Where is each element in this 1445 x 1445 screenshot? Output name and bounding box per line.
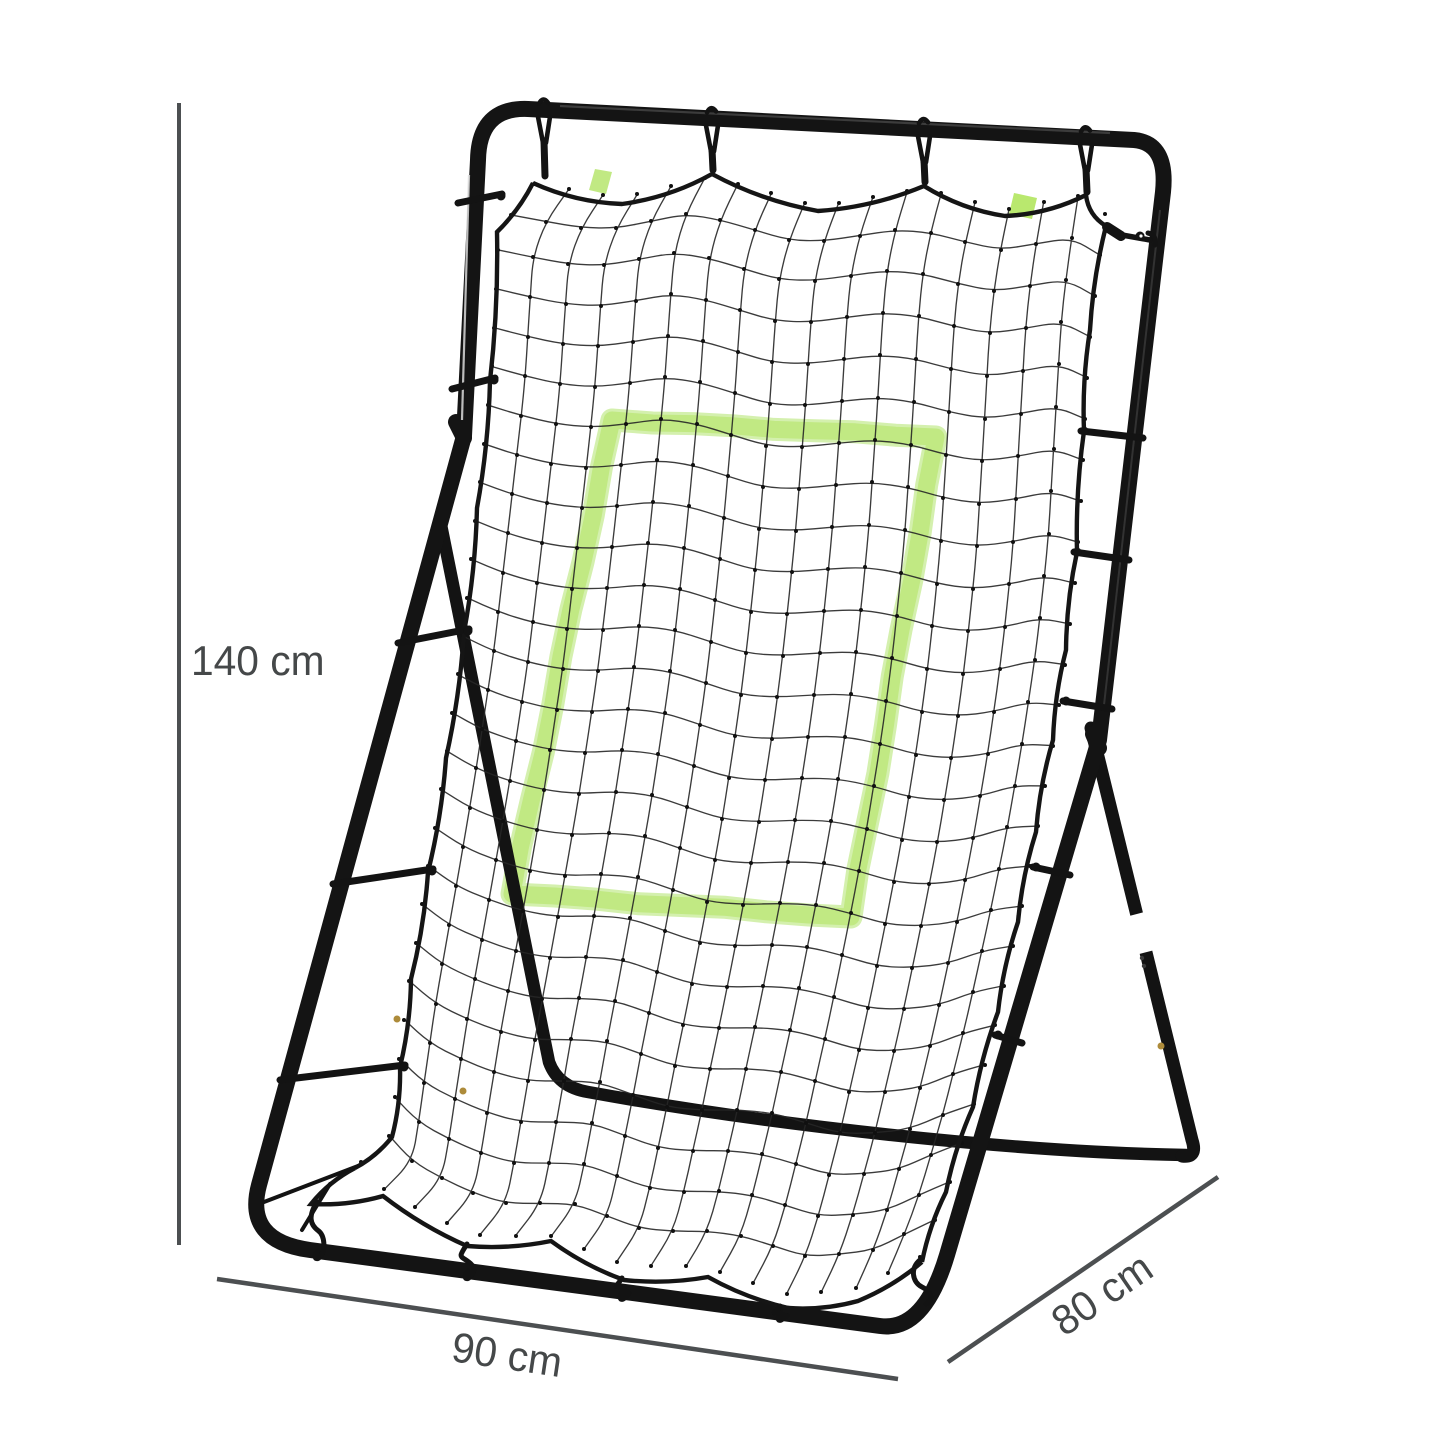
svg-text:140 cm: 140 cm <box>191 637 325 684</box>
